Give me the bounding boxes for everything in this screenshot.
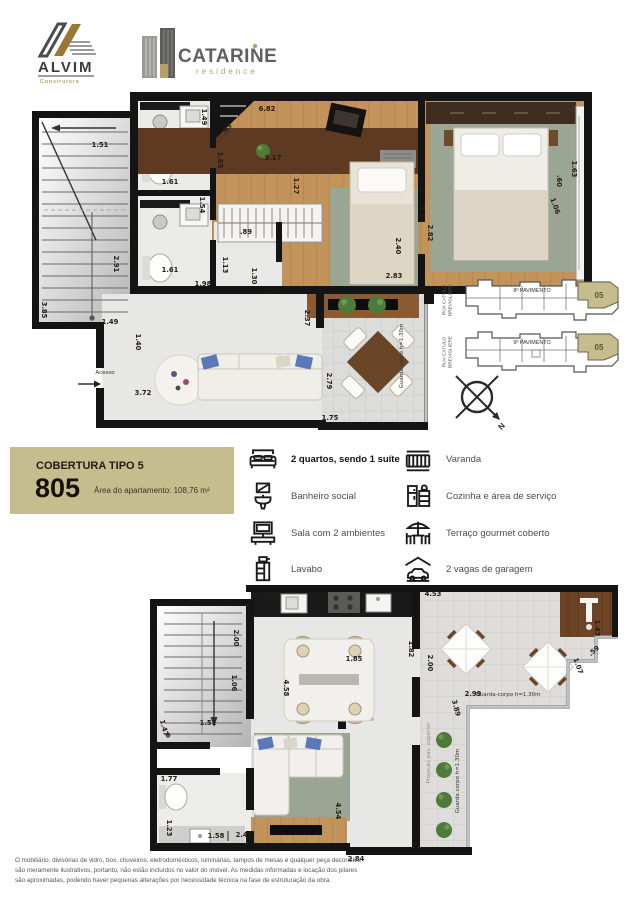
access-label: Acesso [95,370,114,376]
kitchen-icon [403,481,433,511]
dimension-label: 3.17 [265,154,282,162]
lower-floor-plan-drawing [150,585,625,885]
balcony-icon [403,444,433,474]
dimension-label: 2.00 [426,655,434,672]
feature-garage: 2 vagas de garagem [403,554,533,584]
dimension-label: 2.43 [236,831,253,839]
apartment-type-label: COBERTURA TIPO 5 [36,460,144,472]
entry-arrow [78,381,101,388]
dimension-label: 1.98 [195,280,212,288]
washbasin-icon [248,554,278,584]
disclaimer-text: O mobiliário, divisórias de vidro, box, … [15,856,435,885]
catarine-subtitle: residence [196,67,258,76]
dimension-label: 4.53 [425,590,442,598]
compass: N [448,368,512,432]
street-label-8: RUA CATULO BREVIGLIERE [442,275,454,325]
guard-rail-label-terrace: Guarda-corpo h=1.30m [475,692,540,698]
dimension-label: 1.40 [134,334,142,351]
dimension-label: 1.63 [570,161,578,178]
dimension-label: 1.54 [198,197,206,214]
floor-9-label: 9º PAVIMENTO [513,340,550,346]
disclaimer-line: são meramente ilustrativos, portanto, nã… [15,866,435,876]
feature-lavabo: Lavabo [248,554,322,584]
dimension-label: 1.06 [230,675,238,692]
feature-terrace: Terraço gourmet coberto [403,518,550,548]
feature-kitchen: Cozinha e área de serviço [403,481,556,511]
feature-label: Lavabo [291,564,322,575]
unit-number: 805 [35,473,80,504]
dimension-label: 1.49 [200,109,208,126]
projection-label: Projeção pav. superior [426,723,432,784]
disclaimer-line: são aproximadas, podendo haver pequenas … [15,876,435,886]
dimension-label: 1.44 [418,206,426,223]
alvim-subtitle: Construtora [40,79,80,85]
feature-living: Sala com 2 ambientes [248,518,385,548]
dimension-label: 4.54 [334,803,342,820]
dimension-label: 1.85 [346,655,363,663]
feature-varanda: Varanda [403,444,481,474]
bathroom-icon [248,481,278,511]
dimension-label: 4.58 [282,680,290,697]
feature-label: 2 vagas de garagem [446,564,533,575]
dimension-label: 1.58 [208,832,225,840]
dimension-label: 2.79 [325,373,333,390]
dimension-label: 1.30 [250,268,258,285]
dimension-label: 1.23 [165,820,173,837]
dimension-label: 1.61 [162,178,179,186]
dimension-label: 3.08 [263,592,280,600]
dimension-label: 3.85 [40,302,48,319]
dimension-label: 2.00 [232,630,240,647]
dimension-label: 1.82 [407,641,415,658]
guard-rail-label-upper: Guarda corpo h=1.30m [399,324,405,389]
dimension-label: 3.72 [135,389,152,397]
dimension-label: 1.27 [292,178,300,195]
dimension-label: 2.83 [386,272,403,280]
disclaimer-line: O mobiliário, divisórias de vidro, box, … [15,856,435,866]
floor-8-label: 8º PAVIMENTO [513,288,550,294]
dimension-label: 2.37 [303,310,311,327]
feature-label: Terraço gourmet coberto [446,528,550,539]
dimension-label: 2.40 [394,238,402,255]
floor-plan-brochure-page: ALVIM Construtora CATARINE residence [0,0,643,900]
bed-icon [248,444,278,474]
garage-icon [403,554,433,584]
dimension-label: 6.82 [259,105,276,113]
alvim-logo: ALVIM Construtora [28,16,108,88]
feature-bathroom: Banheiro social [248,481,356,511]
dimension-label: 2.91 [112,256,120,273]
feature-bedrooms: 2 quartos, sendo 1 suíte [248,444,400,474]
feature-label: 2 quartos, sendo 1 suíte [291,454,400,465]
dining-set [284,637,374,724]
catarine-name: CATARINE [178,46,277,67]
dimension-label: 1.77 [161,775,178,783]
lower-floor-plan: 3.082.001.061.511.471.854.581.824.532.00… [150,585,625,885]
dimension-label: 1.51 [92,141,109,149]
dimension-label: 1.05 [264,288,281,296]
dimension-label: 1.65 [216,152,224,169]
terrace-icon [403,518,433,548]
catarine-logo: CATARINE residence [138,20,298,86]
dimension-label: .89 [240,228,252,236]
feature-label: Sala com 2 ambientes [291,528,385,539]
dimension-label: 1.61 [162,266,179,274]
dimension-label: 1.75 [322,414,339,422]
compass-north-label: N [496,421,507,432]
feature-label: Banheiro social [291,491,356,502]
dimension-label: .60 [555,175,563,187]
dimension-label: 1.51 [200,719,217,727]
dimension-label: 2.82 [426,225,434,242]
unit-05-label-8: 05 [595,291,604,300]
key-plans: RUA CATULO BREVIGLIERE 05 8º PAVIMENTO R… [438,274,640,436]
guard-rail-label-side: Guarda corpo h=1.30m [455,749,461,814]
feature-label: Varanda [446,454,481,465]
key-plan-floor-8: 05 8º PAVIMENTO [460,276,632,322]
dimension-label: 1.13 [221,257,229,274]
dimension-label: 1.49 [102,318,119,326]
info-box: COBERTURA TIPO 5 805 Área do apartamento… [10,447,234,514]
alvim-name: ALVIM [38,59,94,76]
tv-room-icon [248,518,278,548]
feature-label: Cozinha e área de serviço [446,491,556,502]
dimension-label: 1.43 [593,620,601,637]
unit-05-label-9: 05 [595,343,604,352]
apartment-area-label: Área do apartamento: 108,76 m² [94,486,210,495]
